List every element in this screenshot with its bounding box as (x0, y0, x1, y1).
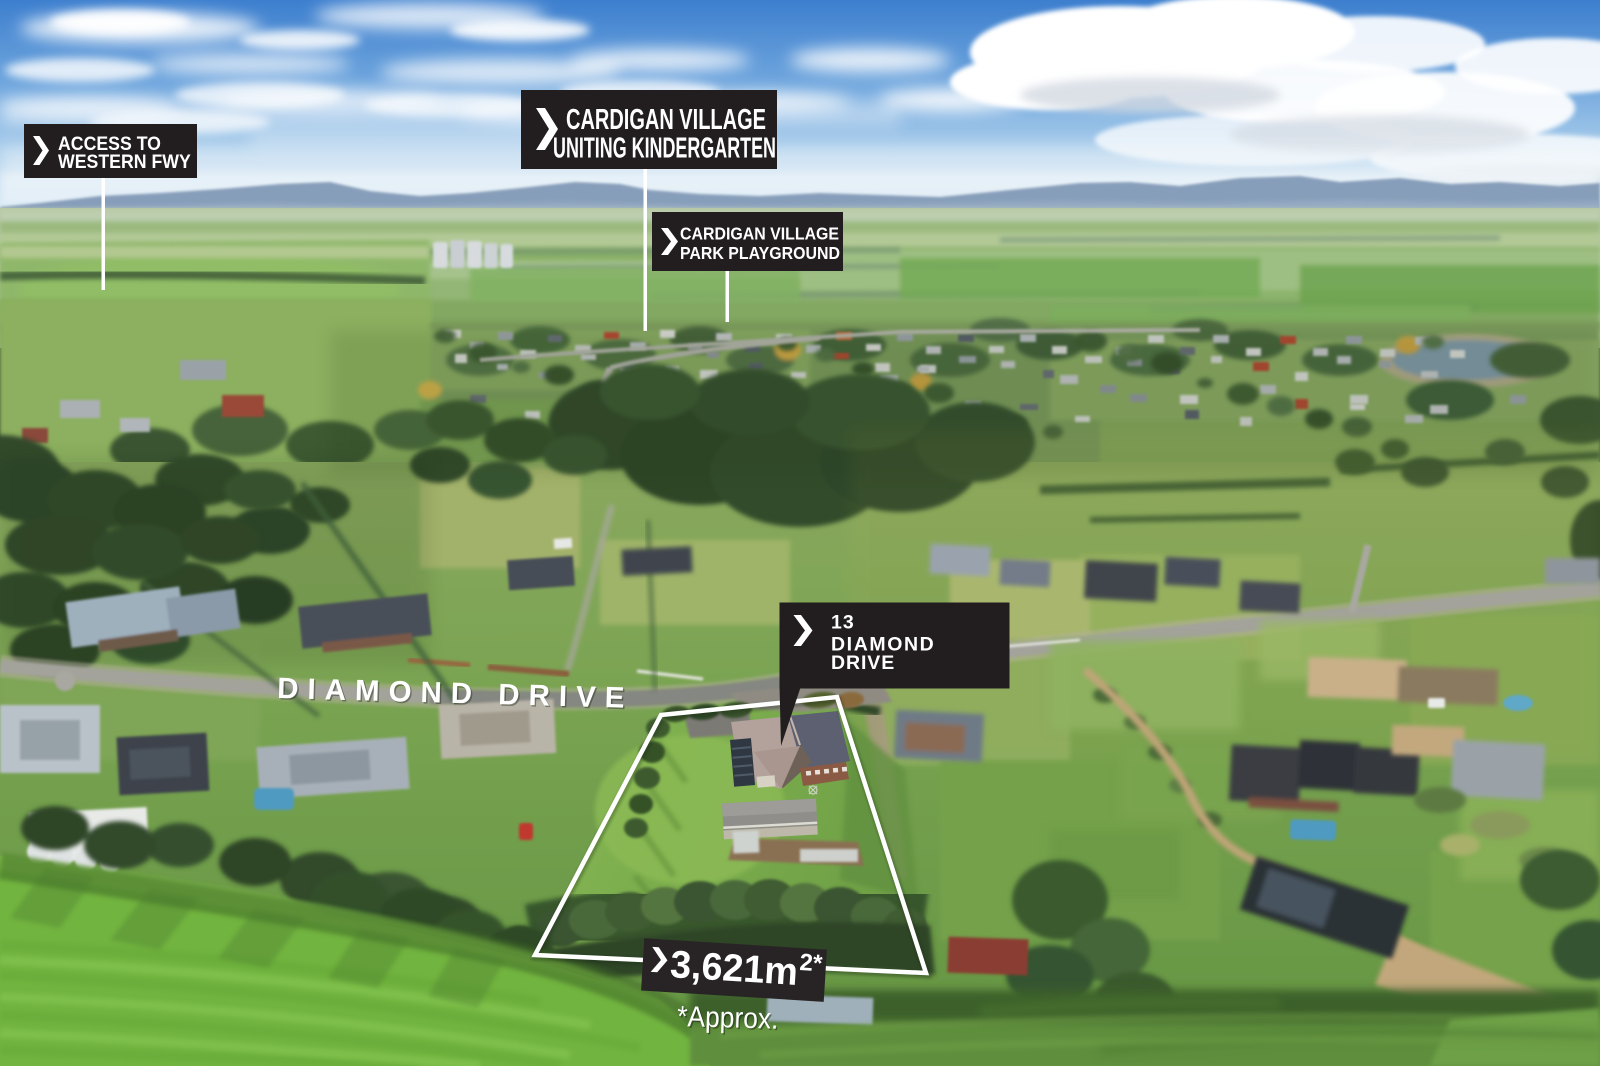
svg-text:CARDIGAN VILLAGE: CARDIGAN VILLAGE (680, 224, 839, 244)
svg-text:CARDIGAN VILLAGE: CARDIGAN VILLAGE (566, 105, 766, 136)
svg-text:13: 13 (831, 612, 855, 634)
svg-text:2*: 2* (799, 949, 824, 977)
svg-text:UNITING KINDERGARTEN: UNITING KINDERGARTEN (553, 132, 776, 164)
svg-text:3,621m: 3,621m (669, 944, 799, 994)
svg-text:PARK PLAYGROUND: PARK PLAYGROUND (680, 243, 840, 263)
svg-text:*Approx.: *Approx. (677, 1000, 779, 1035)
svg-text:WESTERN FWY: WESTERN FWY (58, 150, 191, 172)
svg-text:DRIVE: DRIVE (831, 652, 895, 674)
